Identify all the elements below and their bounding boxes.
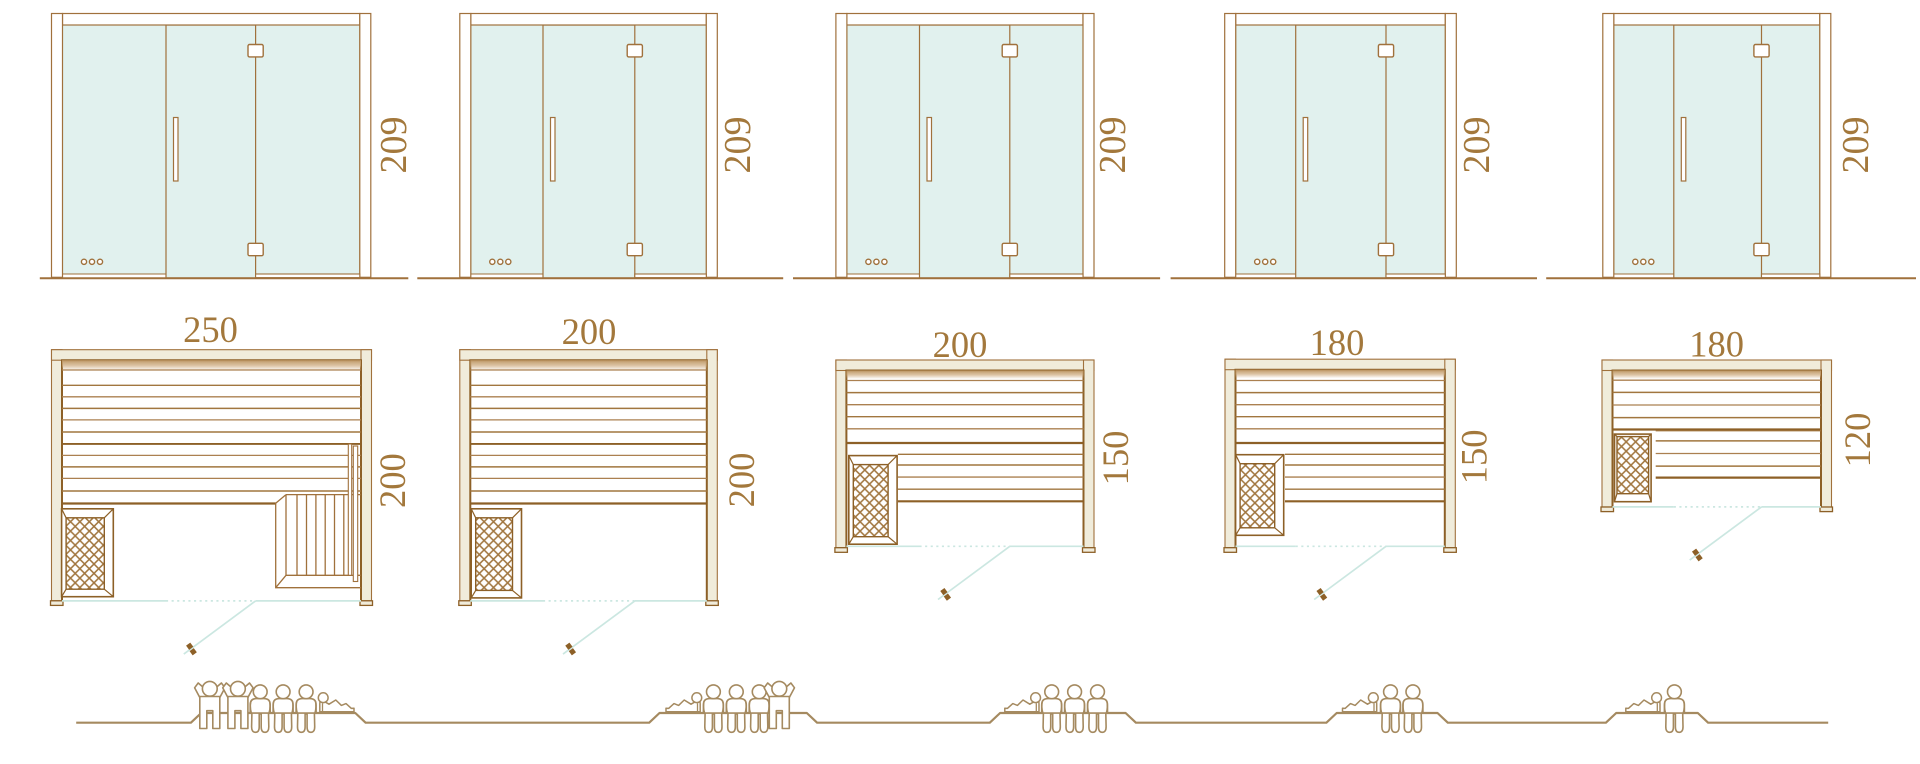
svg-text:150: 150 bbox=[1095, 431, 1136, 486]
svg-text:120: 120 bbox=[1837, 413, 1878, 468]
svg-text:180: 180 bbox=[1689, 323, 1744, 364]
svg-text:209: 209 bbox=[1835, 117, 1877, 174]
svg-text:200: 200 bbox=[721, 453, 762, 508]
svg-text:250: 250 bbox=[183, 309, 238, 350]
svg-text:209: 209 bbox=[373, 117, 415, 174]
svg-text:200: 200 bbox=[933, 324, 988, 365]
svg-text:150: 150 bbox=[1453, 430, 1494, 485]
svg-text:209: 209 bbox=[1456, 117, 1498, 174]
svg-text:209: 209 bbox=[1092, 117, 1134, 174]
svg-text:180: 180 bbox=[1310, 322, 1365, 363]
svg-text:200: 200 bbox=[562, 311, 617, 352]
svg-text:200: 200 bbox=[372, 453, 413, 508]
svg-text:209: 209 bbox=[717, 117, 759, 174]
